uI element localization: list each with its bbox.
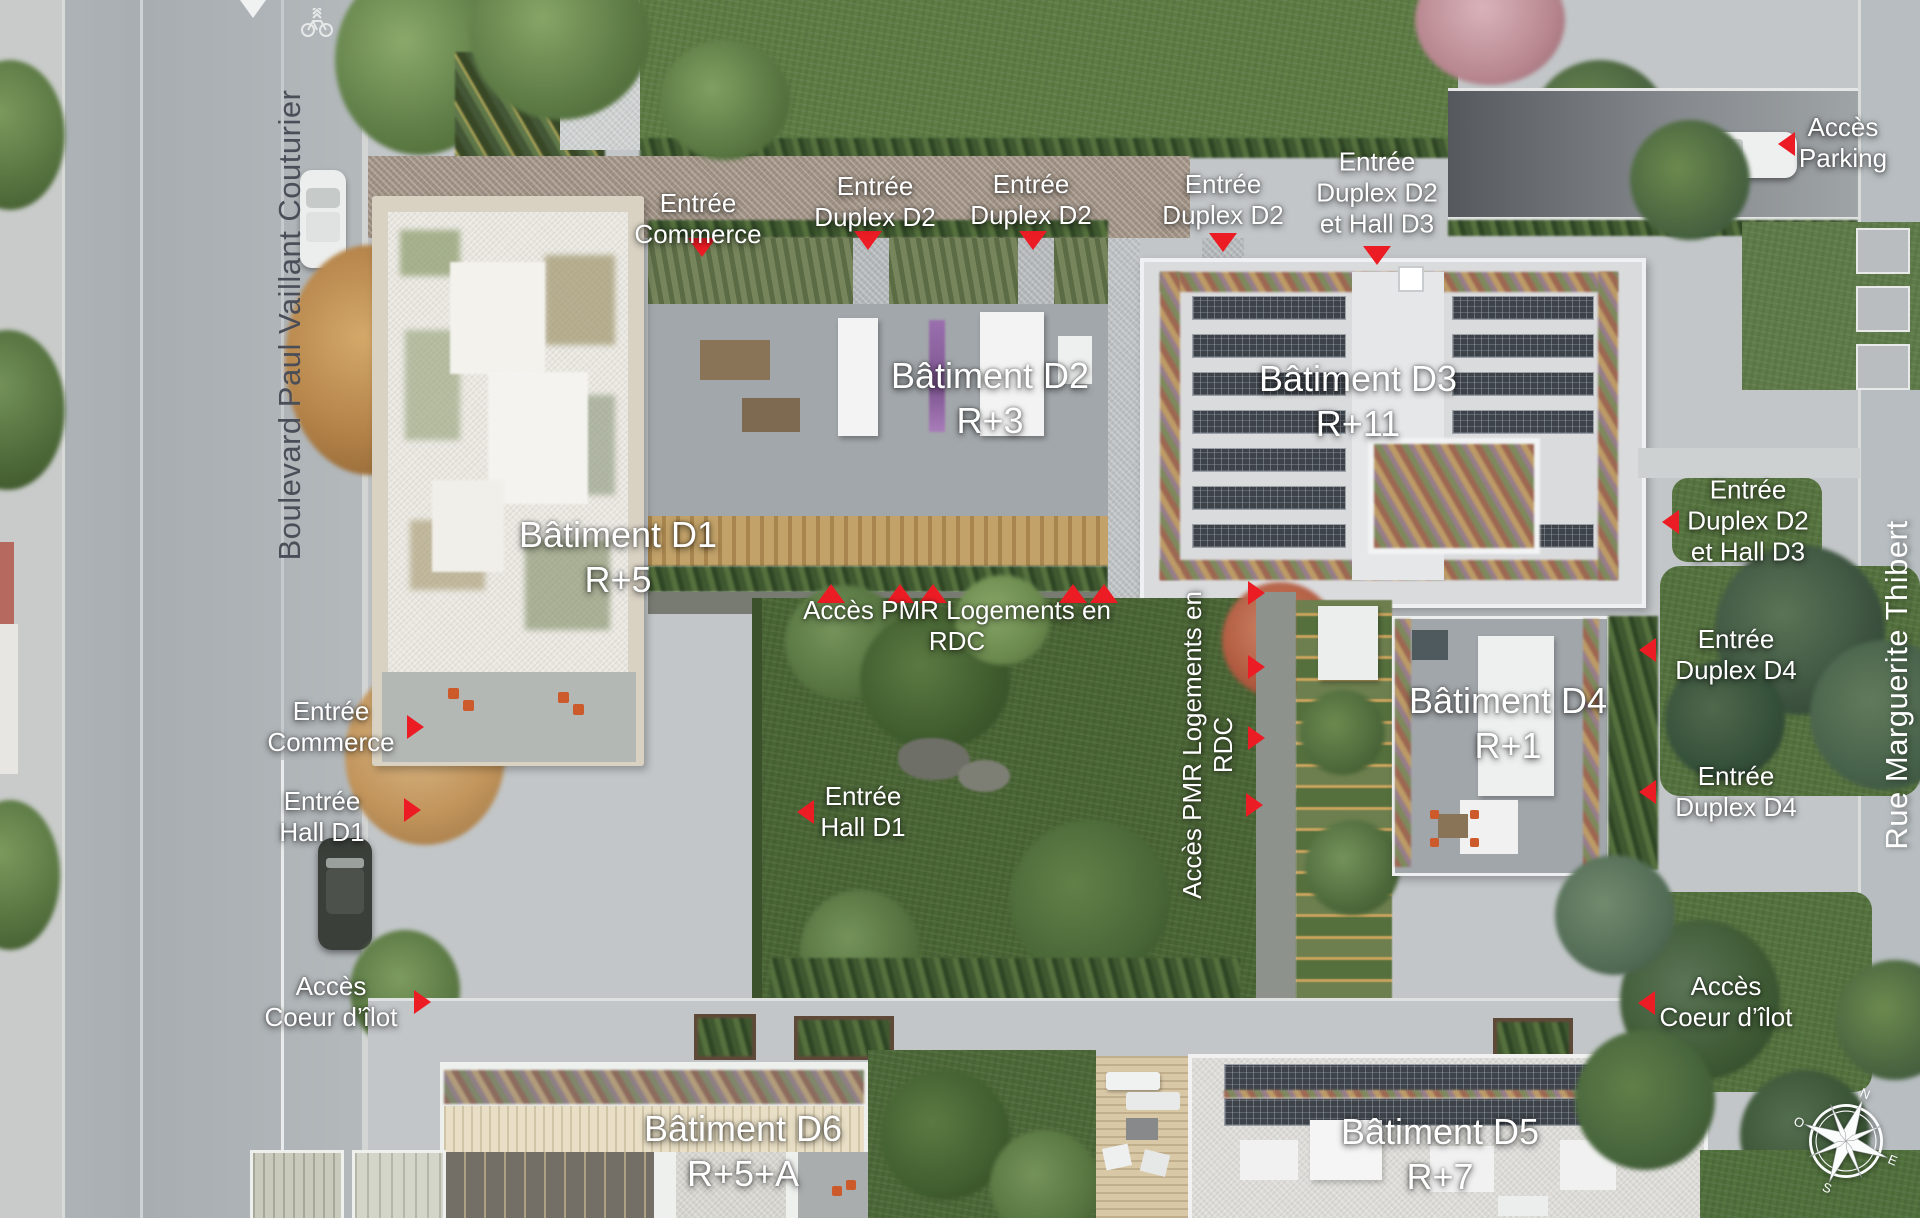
d4-white-box [1460, 800, 1518, 854]
entrance-line: Entrée [970, 169, 1091, 200]
entrance-line: Entrée [820, 781, 905, 812]
d3-solar-panel [1192, 296, 1346, 320]
label-left-hall-d1: Entrée Hall D1 [279, 786, 364, 848]
entrance-line: Duplex D2 [1316, 178, 1437, 209]
car-roof [326, 868, 364, 914]
d3-planter-left [1160, 272, 1180, 580]
d2-d3-path [1108, 238, 1140, 600]
d5-white-box [1498, 1196, 1548, 1216]
entrance-line: Entrée [814, 171, 935, 202]
street-name-right: Rue Marguerite Thibert [1879, 520, 1915, 849]
d3-solar-panel [1452, 296, 1594, 320]
brick-facade [0, 542, 14, 624]
entrance-line: Coeur d’îlot [265, 1002, 398, 1033]
d3-skylight [1398, 266, 1424, 292]
marker-left-coeur-ilot [414, 990, 431, 1014]
entrance-line: et Hall D3 [1316, 209, 1437, 240]
compass-e: E [1886, 1151, 1900, 1168]
building-floors: R+11 [1259, 401, 1457, 446]
plot-square [1856, 344, 1910, 390]
d2-terrace-table [742, 398, 800, 432]
planter-shrubs [698, 1018, 752, 1056]
marker-entree-duplex-d2-2 [1019, 231, 1047, 250]
marker-pmr-vertical [1248, 726, 1265, 750]
entrance-line: Parking [1799, 143, 1887, 174]
white-facade [0, 624, 18, 774]
building-floors: R+3 [891, 398, 1089, 443]
d1-terrace-chair [448, 688, 459, 699]
building-floors: R+7 [1341, 1154, 1539, 1199]
garden-shrub-row [770, 958, 1240, 1002]
deck-lounger [1106, 1072, 1160, 1090]
entrance-line: Entrée [1675, 624, 1796, 655]
d4-chair [1430, 810, 1439, 819]
label-entree-duplex-d2-3: Entrée Duplex D2 [1162, 169, 1283, 231]
d4-chair [1470, 810, 1479, 819]
marker-acces-parking [1778, 132, 1795, 156]
car-windshield [326, 858, 364, 868]
building-name: Bâtiment D5 [1341, 1109, 1539, 1154]
label-batiment-d6: Bâtiment D6 R+5+A [644, 1106, 842, 1196]
entrance-line: Entrée [267, 696, 394, 727]
road-arrow-marking [240, 0, 266, 18]
marker-entree-duplex-d2-3 [1209, 233, 1237, 252]
building-name: Bâtiment D6 [644, 1106, 842, 1151]
marker-entree-duplex-d2-1 [854, 231, 882, 250]
d3-solar-panel [1452, 410, 1594, 434]
left-curb-line [62, 0, 65, 1218]
marker-pmr-vertical [1248, 655, 1265, 679]
marker-right-duplex-d4-2 [1639, 780, 1656, 804]
building-floors: R+1 [1409, 723, 1607, 768]
d1-terrace-chair [463, 700, 474, 711]
dark-car [318, 838, 372, 950]
entrance-line: Entrée [634, 188, 761, 219]
building-name: Bâtiment D2 [891, 353, 1089, 398]
bl-roof [352, 1150, 446, 1218]
d1-terrace-chair [558, 692, 569, 703]
marker-right-coeur-ilot [1638, 991, 1655, 1015]
d6-dark-roof [444, 1152, 654, 1218]
entrance-line: et Hall D3 [1687, 537, 1808, 568]
bl-roof [250, 1150, 344, 1218]
entrance-line: Commerce [634, 219, 761, 250]
walkway-planter [694, 1014, 756, 1060]
entrance-line: Entrée [1316, 147, 1437, 178]
d5-white-box [1240, 1140, 1298, 1180]
compass-o: O [1792, 1113, 1807, 1131]
entrance-line: Coeur d’îlot [1660, 1002, 1793, 1033]
label-batiment-d5: Bâtiment D5 R+7 [1341, 1109, 1539, 1199]
garden-hedge-left [752, 598, 762, 1000]
d3-solar-panel [1192, 448, 1346, 472]
garden-tree [1010, 820, 1170, 980]
d3-solar-panel [1452, 334, 1594, 358]
label-acces-pmr-horizontal: Accès PMR Logements en RDC [803, 595, 1111, 657]
d4-chair [1430, 838, 1439, 847]
left-lane-line [140, 0, 143, 1218]
entrance-line: RDC [803, 626, 1111, 657]
d1-green-patch [545, 255, 615, 345]
label-acces-pmr-vertical: Accès PMR Logements en RDC [1177, 591, 1239, 899]
d3-solar-panel [1192, 486, 1346, 510]
duplex-tree [1555, 855, 1675, 975]
deck-table [1126, 1118, 1158, 1140]
d6-green-band [444, 1070, 864, 1104]
bike-lane-icon [300, 8, 334, 38]
entrance-line: Accès PMR Logements en [1177, 591, 1208, 899]
entrance-line: Accès PMR Logements en [803, 595, 1111, 626]
d3-solar-panel [1192, 334, 1346, 358]
d1-roof-core [432, 480, 504, 572]
plot-square [1856, 228, 1910, 274]
entrance-line: Accès [1660, 971, 1793, 1002]
d3-solar-panel [1192, 524, 1346, 548]
label-batiment-d3: Bâtiment D3 R+11 [1259, 356, 1457, 446]
label-entree-hall-d1-center: Entrée Hall D1 [820, 781, 905, 843]
d1-roof-core [450, 262, 545, 374]
label-right-coeur-ilot: Accès Coeur d’îlot [1660, 971, 1793, 1033]
car-roof [306, 212, 340, 242]
marker-pmr-vertical [1246, 793, 1263, 817]
label-entree-commerce-top: Entrée Commerce [634, 188, 761, 250]
marker-left-hall-d1 [404, 798, 421, 822]
label-right-duplex-d4-1: Entrée Duplex D4 [1675, 624, 1796, 686]
d2-white-box [838, 318, 878, 436]
d4-chair [1470, 838, 1479, 847]
d4-table [1438, 814, 1468, 838]
entrance-line: Duplex D2 [1687, 506, 1808, 537]
marker-entree-duplex-d2-hall-d3 [1363, 246, 1391, 265]
right-tree [1630, 120, 1750, 240]
entrance-line: Entrée [1162, 169, 1283, 200]
entrance-line: RDC [1208, 591, 1239, 899]
marker-pmr-vertical [1248, 581, 1265, 605]
entrance-line: Duplex D4 [1675, 655, 1796, 686]
building-name: Bâtiment D1 [519, 512, 717, 557]
entrance-line: Duplex D4 [1675, 792, 1796, 823]
entrance-line: Duplex D2 [1162, 200, 1283, 231]
entrance-line: Entrée [1687, 475, 1808, 506]
marker-right-duplex-d2-hall-d3 [1662, 510, 1679, 534]
label-batiment-d2: Bâtiment D2 R+3 [891, 353, 1089, 443]
entrance-line: Entrée [1675, 761, 1796, 792]
label-entree-duplex-d2-1: Entrée Duplex D2 [814, 171, 935, 233]
label-left-commerce: Entrée Commerce [267, 696, 394, 758]
building-name: Bâtiment D4 [1409, 678, 1607, 723]
entrance-line: Accès [265, 971, 398, 1002]
right-tree [1575, 1030, 1715, 1170]
garden-rocks [958, 760, 1010, 792]
label-batiment-d1: Bâtiment D1 R+5 [519, 512, 717, 602]
label-entree-duplex-d2-2: Entrée Duplex D2 [970, 169, 1091, 231]
compass-rose: N E S O [1790, 1085, 1902, 1197]
label-left-coeur-ilot: Accès Coeur d’îlot [265, 971, 398, 1033]
label-right-duplex-d2-hall-d3: Entrée Duplex D2 et Hall D3 [1687, 475, 1808, 568]
d4-roof-items [1412, 630, 1448, 660]
lawn-tree [660, 40, 790, 160]
marker-right-duplex-d4-1 [1639, 638, 1656, 662]
building-floors: R+5 [519, 557, 717, 602]
label-right-duplex-d4-2: Entrée Duplex D4 [1675, 761, 1796, 823]
entrance-line: Accès [1799, 112, 1887, 143]
entrance-line: Entrée [279, 786, 364, 817]
marker-entree-hall-d1-center [797, 800, 814, 824]
building-name: Bâtiment D3 [1259, 356, 1457, 401]
entrance-line: Duplex D2 [814, 202, 935, 233]
allotment-tree [1300, 690, 1385, 775]
street-name-left: Boulevard Paul Vaillant Couturier [272, 90, 308, 561]
label-acces-parking: Accès Parking [1799, 112, 1887, 174]
entrance-line: Duplex D2 [970, 200, 1091, 231]
compass-n: N [1858, 1085, 1872, 1102]
compass-s: S [1820, 1179, 1834, 1196]
deck-lounger [1126, 1092, 1180, 1110]
d1-terrace-chair [573, 704, 584, 715]
d6-chair [846, 1180, 856, 1190]
entrance-line: Commerce [267, 727, 394, 758]
entrance-line: Hall D1 [279, 817, 364, 848]
d3-planter-right [1598, 272, 1618, 580]
garden-shed [1318, 606, 1378, 680]
d2-terrace-table [700, 340, 770, 380]
label-batiment-d4: Bâtiment D4 R+1 [1409, 678, 1607, 768]
site-plan: Boulevard Paul Vaillant Couturier Rue Ma… [0, 0, 1920, 1218]
plot-square [1856, 286, 1910, 332]
building-floors: R+5+A [644, 1151, 842, 1196]
marker-left-commerce [407, 715, 424, 739]
d3-solar-panel [1452, 372, 1594, 396]
allotment-tree [1305, 820, 1400, 915]
d3-courtyard-garden [1368, 438, 1540, 554]
right-path [1638, 448, 1860, 478]
planter-shrubs [1497, 1022, 1569, 1056]
entrance-line: Hall D1 [820, 812, 905, 843]
label-entree-duplex-d2-hall-d3-top: Entrée Duplex D2 et Hall D3 [1316, 147, 1437, 240]
car-windshield [306, 188, 340, 208]
